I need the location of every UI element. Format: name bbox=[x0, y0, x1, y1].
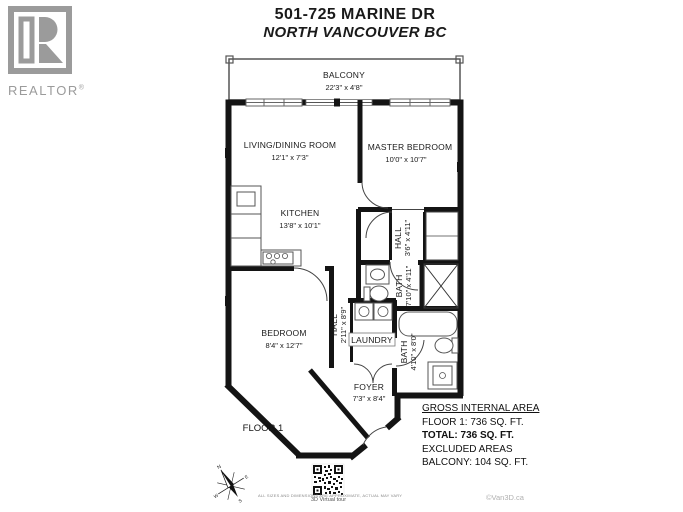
foyer-dims: 7'3" x 8'4" bbox=[353, 394, 386, 403]
bath-lower-dims: 4'10" x 8'0" bbox=[409, 333, 418, 370]
room-label-hall-upper: HALL 3'6" x 4'11" bbox=[393, 219, 412, 256]
area-floor1: FLOOR 1: 736 SQ. FT. bbox=[422, 416, 539, 430]
bath-upper-dims: 7'10" x 4'11" bbox=[404, 265, 413, 306]
room-label-laundry: LAUNDRY bbox=[349, 333, 395, 346]
hall-upper-label: HALL bbox=[393, 227, 403, 249]
balcony-label: BALCONY bbox=[323, 70, 365, 80]
hall-upper-dims: 3'6" x 4'11" bbox=[403, 219, 412, 256]
area-excluded: EXCLUDED AREAS bbox=[422, 443, 539, 457]
living-dims: 12'1" x 7'3" bbox=[272, 153, 309, 162]
svg-text:N: N bbox=[216, 464, 223, 471]
room-label-bedroom: BEDROOM 8'4" x 12'7" bbox=[261, 328, 306, 350]
bedroom-label: BEDROOM bbox=[261, 328, 306, 338]
floorplan-drawing: BALCONY 22'3" x 4'8" LIVING/DINING ROOM … bbox=[0, 0, 683, 512]
qr-caption: 3D Virtual tour bbox=[311, 497, 346, 503]
kitchen-dims: 13'8" x 10'1" bbox=[279, 221, 320, 230]
balcony-windows bbox=[246, 99, 450, 107]
room-label-bath-lower: BATH 4'10" x 8'0" bbox=[399, 333, 418, 370]
area-summary-heading: GROSS INTERNAL AREA bbox=[422, 402, 539, 416]
closets bbox=[424, 212, 458, 308]
bedroom-dims: 8'4" x 12'7" bbox=[266, 341, 303, 350]
master-label: MASTER BEDROOM bbox=[368, 142, 453, 152]
master-dims: 10'0" x 10'7" bbox=[385, 155, 426, 164]
balcony-dims: 22'3" x 4'8" bbox=[326, 83, 363, 92]
copyright-text: ©Van3D.ca bbox=[486, 493, 524, 502]
room-label-balcony: BALCONY 22'3" x 4'8" bbox=[323, 70, 365, 92]
hall-lower-label: HALL bbox=[329, 314, 339, 336]
floor-label: FLOOR 1 bbox=[243, 423, 284, 434]
room-label-kitchen: KITCHEN 13'8" x 10'1" bbox=[279, 208, 320, 230]
svg-text:S: S bbox=[238, 498, 243, 504]
kitchen-label: KITCHEN bbox=[281, 208, 320, 218]
room-label-master: MASTER BEDROOM 10'0" x 10'7" bbox=[368, 142, 453, 164]
laundry-machines bbox=[355, 303, 392, 320]
room-label-living: LIVING/DINING ROOM 12'1" x 7'3" bbox=[244, 140, 336, 162]
area-balcony: BALCONY: 104 SQ. FT. bbox=[422, 456, 539, 470]
laundry-label: LAUNDRY bbox=[351, 335, 393, 345]
bath-lower-label: BATH bbox=[399, 341, 409, 364]
area-total: TOTAL: 736 SQ. FT. bbox=[422, 429, 539, 443]
foyer-label: FOYER bbox=[354, 382, 384, 392]
upper-bath-fixtures bbox=[364, 265, 389, 301]
svg-text:E: E bbox=[244, 474, 249, 480]
hall-lower-dims: 2'11" x 8'9" bbox=[339, 306, 348, 343]
compass-icon: N E S W bbox=[201, 454, 258, 512]
bath-upper-label: BATH bbox=[394, 275, 404, 298]
floorplan-page: { "header": { "title": "501-725 MARINE D… bbox=[0, 0, 683, 512]
area-summary: GROSS INTERNAL AREA FLOOR 1: 736 SQ. FT.… bbox=[422, 402, 539, 470]
qr-code-icon bbox=[312, 464, 344, 496]
living-label: LIVING/DINING ROOM bbox=[244, 140, 336, 150]
room-label-foyer: FOYER 7'3" x 8'4" bbox=[353, 382, 386, 403]
